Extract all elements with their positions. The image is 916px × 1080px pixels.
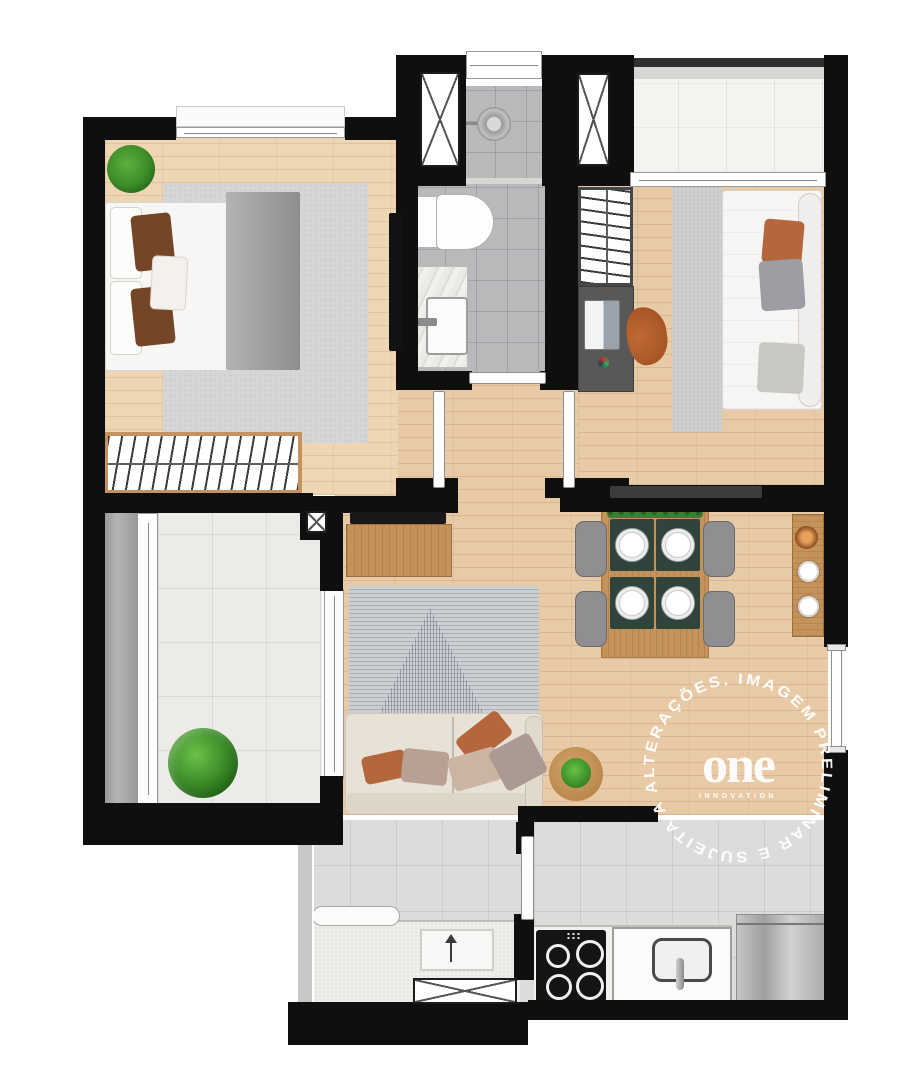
kitchen-faucet bbox=[676, 958, 684, 990]
wall-bedroom1-south bbox=[83, 493, 313, 513]
bed-throw bbox=[226, 192, 300, 370]
wall-balcony-south bbox=[83, 803, 343, 845]
bedroom1-window-sill bbox=[176, 106, 345, 127]
bedroom2-ledge-band bbox=[630, 67, 826, 79]
bedroom2-ledge-floor bbox=[630, 79, 826, 172]
side-table-plant bbox=[561, 758, 591, 788]
floor-plan: IMAGEM PRELIMINAR E SUJEITA A ALTERAÇÕES… bbox=[0, 0, 916, 1080]
shower-threshold bbox=[464, 178, 545, 184]
kitchen-door bbox=[521, 836, 534, 920]
ventilation-shaft bbox=[577, 73, 610, 166]
preliminary-watermark: IMAGEM PRELIMINAR E SUJEITA A ALTERAÇÕES… bbox=[626, 656, 850, 880]
living-tv bbox=[350, 512, 446, 524]
niche-arrow-head-icon bbox=[445, 934, 457, 943]
bathroom-door bbox=[469, 372, 546, 384]
wall-right-mid bbox=[824, 455, 848, 647]
wall-right-top bbox=[824, 55, 848, 455]
balcony-plant bbox=[168, 728, 238, 798]
burner bbox=[546, 944, 570, 968]
bathroom-sink bbox=[426, 297, 468, 355]
wall-top-bedroom1-left bbox=[83, 117, 176, 140]
light-cushion bbox=[757, 342, 806, 394]
bedroom2-clothes-rack bbox=[578, 187, 633, 286]
bedroom2-rug bbox=[672, 186, 722, 432]
wall-kitchen-door-bottom bbox=[514, 914, 534, 980]
dining-chair bbox=[703, 521, 735, 577]
burner bbox=[576, 940, 604, 968]
bedroom2-window bbox=[630, 172, 826, 187]
burner bbox=[576, 972, 604, 1000]
cup bbox=[798, 561, 819, 582]
bedroom1-door bbox=[433, 391, 445, 488]
refrigerator bbox=[736, 914, 828, 1002]
cup bbox=[798, 596, 819, 617]
toilet-bowl bbox=[436, 194, 494, 250]
entry-door-jamb bbox=[827, 644, 846, 651]
balcony-railing-glass bbox=[137, 513, 158, 805]
watermark-logo-subtext: INNOVATION bbox=[699, 793, 777, 800]
wall-bathroom-right bbox=[545, 186, 578, 390]
living-rug bbox=[349, 586, 539, 714]
ventilation-shaft bbox=[420, 72, 460, 167]
fridge-handle bbox=[737, 923, 827, 925]
wall-bottom-right bbox=[528, 1000, 848, 1020]
toilet-tank bbox=[416, 196, 438, 248]
decor-bowl bbox=[795, 526, 818, 549]
plate bbox=[616, 529, 648, 561]
small-shaft bbox=[306, 511, 327, 533]
dining-chair bbox=[575, 521, 607, 577]
wall-hall-left-elbow bbox=[396, 478, 458, 498]
sofa-pillow-taupe bbox=[400, 748, 449, 787]
plate bbox=[616, 587, 648, 619]
drying-rack bbox=[312, 906, 400, 926]
balcony-ledge bbox=[101, 513, 137, 805]
tv-console bbox=[346, 524, 452, 577]
counter-niche bbox=[420, 929, 494, 971]
burner bbox=[546, 974, 572, 1000]
bedroom1-plant bbox=[107, 145, 155, 193]
plate bbox=[662, 587, 694, 619]
small-white-pillow bbox=[150, 255, 189, 311]
bedroom2-ledge-rim bbox=[630, 58, 826, 67]
sofa-backrest bbox=[347, 793, 541, 814]
bathroom-window bbox=[466, 51, 542, 79]
wall-bottom-left bbox=[288, 1002, 528, 1045]
cooktop-knobs bbox=[566, 932, 582, 940]
wall-left bbox=[83, 117, 105, 845]
cooktop bbox=[536, 930, 606, 1002]
laptop bbox=[584, 300, 620, 350]
shower-head bbox=[477, 107, 511, 141]
plate bbox=[662, 529, 694, 561]
sink-faucet bbox=[417, 318, 437, 326]
dining-chair bbox=[703, 591, 735, 647]
wall-balcony-divider-bottom bbox=[320, 776, 343, 806]
bedroom1-window bbox=[176, 127, 345, 138]
service-door-panel bbox=[296, 822, 314, 1004]
dining-tv bbox=[610, 486, 762, 498]
watermark-logo: one bbox=[702, 737, 775, 794]
bedroom1-tv bbox=[389, 213, 402, 351]
bedroom2-door bbox=[563, 391, 575, 488]
laundry-shaft bbox=[413, 978, 517, 1004]
balcony-sliding-door bbox=[324, 589, 344, 779]
bedroom1-clothes-rack bbox=[104, 432, 302, 494]
gray-cushion bbox=[758, 259, 805, 312]
rug-triangle-pattern bbox=[367, 608, 517, 714]
dining-chair bbox=[575, 591, 607, 647]
wall-bathroom-south-left bbox=[396, 371, 472, 390]
desk-object bbox=[598, 357, 609, 368]
